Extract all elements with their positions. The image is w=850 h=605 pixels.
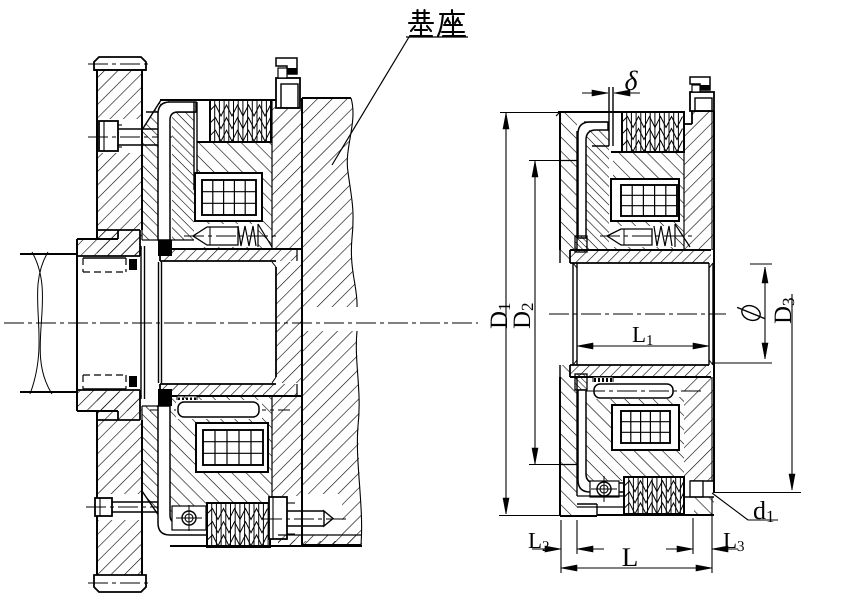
svg-text:δ: δ <box>624 66 638 97</box>
svg-text:L: L <box>622 542 639 572</box>
